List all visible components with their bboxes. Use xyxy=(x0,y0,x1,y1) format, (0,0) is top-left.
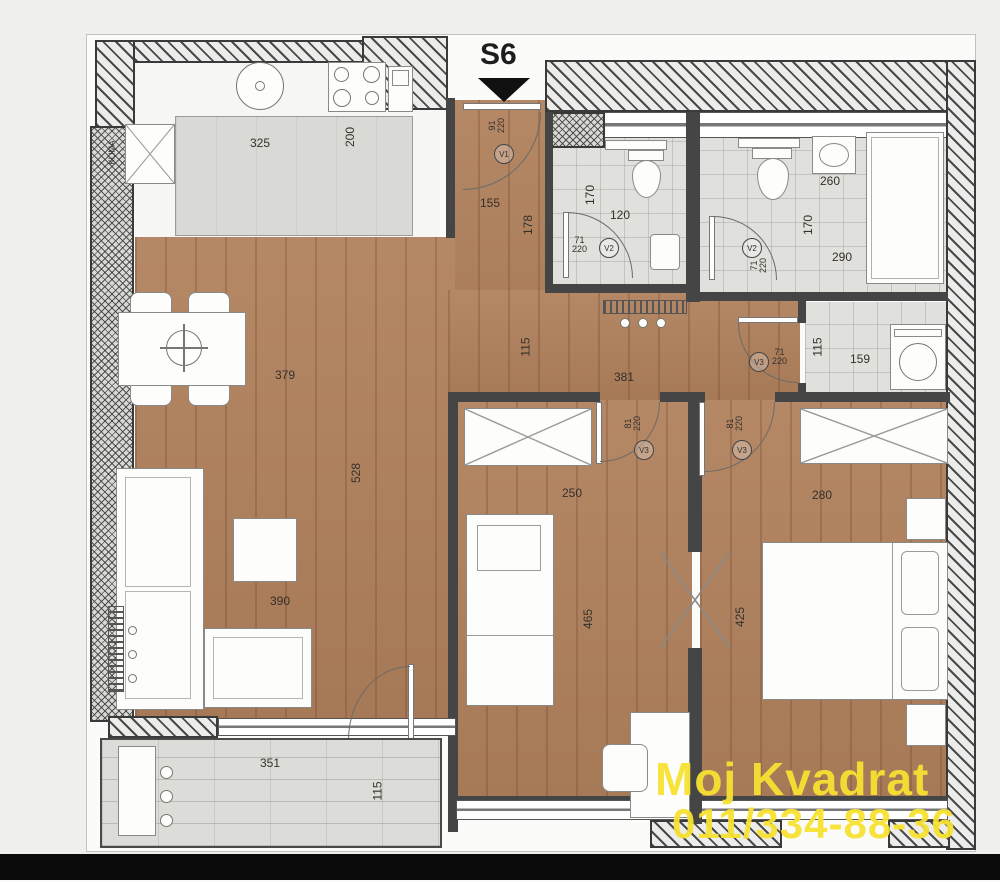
washing-machine-drum xyxy=(899,343,937,381)
sofa-chaise xyxy=(204,628,312,708)
dim-bed2-depth: 425 xyxy=(733,607,747,627)
dim-bath2-width: 290 xyxy=(832,250,852,264)
bed2-nightstand xyxy=(906,704,946,746)
living-terrace-window xyxy=(218,718,456,736)
bed1-door-tag: V3 xyxy=(634,440,654,460)
bath2-shower-inner xyxy=(871,137,939,279)
bed2-wardrobe xyxy=(800,408,948,464)
dim-entry-width: 155 xyxy=(480,196,500,210)
wall-bath1-bottom xyxy=(552,284,692,293)
dim-bath2-sink: 260 xyxy=(820,174,840,188)
dim-terrace-depth: 115 xyxy=(371,781,385,800)
bed1-door-size: 81220 xyxy=(624,416,643,431)
dim-bed1-width: 250 xyxy=(562,486,582,500)
wall-bath-divider xyxy=(686,112,700,302)
watermark-line2: 011/334-88-36 xyxy=(672,800,956,848)
wall-living-bedroom1 xyxy=(448,392,458,832)
dim-bed2-width: 280 xyxy=(812,488,832,502)
bedroom-connecting-door xyxy=(660,552,730,648)
storage-door-tag: V3 xyxy=(749,352,769,372)
entry-door-size: 91220 xyxy=(488,118,507,133)
title-s6: S6 xyxy=(480,38,517,72)
wall-storage-left-upper xyxy=(798,301,806,323)
floor-plan: 325 200 KLIMA S6 91220 V1 155 178 170 12… xyxy=(0,0,1000,882)
terrace-ac-fan xyxy=(160,766,173,779)
dim-kitchen-depth: 200 xyxy=(343,127,357,147)
bath2-sink xyxy=(812,136,856,174)
fridge-inner xyxy=(392,70,409,86)
dim-kitchen-width: 325 xyxy=(250,136,270,150)
dim-terrace-width: 351 xyxy=(260,756,280,770)
wall-corridor-left xyxy=(446,98,455,238)
bath1-door-tag: V2 xyxy=(599,238,619,258)
dim-bed1-depth: 465 xyxy=(581,609,595,629)
terrace-ac-unit xyxy=(118,746,156,836)
klima-label: KLIMA xyxy=(108,140,117,164)
sofa-cushion xyxy=(125,477,191,587)
sofa-cushion xyxy=(213,637,303,699)
terrace-ac-fan xyxy=(160,790,173,803)
bath1-sink xyxy=(650,234,680,270)
bed1-chair xyxy=(602,744,648,792)
dim-bath1-depth: 170 xyxy=(583,185,597,205)
burner xyxy=(365,91,379,105)
wall-top-left-corner xyxy=(95,40,135,128)
dim-bath2-depth: 170 xyxy=(801,215,815,235)
bath2-shower xyxy=(866,132,944,284)
washing-machine-panel xyxy=(894,329,942,337)
living-radiator-knob xyxy=(128,674,137,683)
dim-hall-width: 381 xyxy=(614,370,634,384)
bath2-shelf xyxy=(738,138,800,148)
dim-living-depth: 528 xyxy=(349,463,363,483)
bottom-black-bar xyxy=(0,854,1000,880)
entry-door-leaf xyxy=(463,103,541,110)
shaft-block xyxy=(548,112,605,148)
burner xyxy=(333,89,351,107)
bed1-blanket-line xyxy=(467,635,553,636)
bed2-door-size: 81220 xyxy=(726,416,745,431)
kitchen-counter xyxy=(175,116,413,236)
dim-bath1-width: 120 xyxy=(610,208,630,222)
living-radiator-knob xyxy=(128,626,137,635)
bath2-sink-basin xyxy=(819,143,849,167)
bath2-door-tag: V2 xyxy=(742,238,762,258)
burner xyxy=(363,66,380,83)
dining-table-decor-line xyxy=(183,324,185,372)
bath1-door-size: 71220 xyxy=(572,236,587,255)
wall-bath2-bottom xyxy=(699,292,948,301)
entry-door-tag: V1 xyxy=(494,144,514,164)
sofa-cushion xyxy=(125,591,191,699)
wall-hall-bedrooms-b xyxy=(660,392,705,402)
bed2-pillow xyxy=(901,627,939,691)
hall-radiator-knob xyxy=(638,318,648,328)
watermark-line1: Moj Kvadrat xyxy=(655,752,929,806)
stove xyxy=(328,62,386,112)
kitchen-sink-drain xyxy=(255,81,265,91)
dim-storage-width: 159 xyxy=(850,352,870,366)
bed2-nightstand xyxy=(906,498,946,540)
dim-living-width: 379 xyxy=(275,368,295,382)
burner xyxy=(334,67,349,82)
bed2-door-tag: V3 xyxy=(732,440,752,460)
bed1-pillow xyxy=(477,525,541,571)
storage-door-size: 71220 xyxy=(772,348,787,367)
dim-hall-depth: 115 xyxy=(519,337,533,356)
entrance-arrow-icon xyxy=(478,78,530,102)
bath2-door-size: 71220 xyxy=(750,258,769,273)
wall-hall-bedrooms-a xyxy=(448,392,600,402)
living-radiator-knob xyxy=(128,650,137,659)
bath1-shelf xyxy=(605,140,667,150)
klima-unit xyxy=(125,124,175,184)
hall-radiator xyxy=(603,300,687,314)
living-radiator xyxy=(108,606,124,692)
dim-living-width2: 390 xyxy=(270,594,290,608)
coffee-table xyxy=(233,518,297,582)
dim-storage-depth: 115 xyxy=(811,337,825,356)
terrace-ac-fan xyxy=(160,814,173,827)
hall-radiator-knob xyxy=(656,318,666,328)
bed2-double-bed xyxy=(762,542,948,700)
bed2-pillow xyxy=(901,551,939,615)
hall-radiator-knob xyxy=(620,318,630,328)
washing-machine xyxy=(890,324,946,390)
wall-top-bathrooms xyxy=(545,60,960,112)
wall-living-bottom-hatch xyxy=(108,716,218,738)
bed2-blanket-line xyxy=(892,543,893,699)
wall-right xyxy=(946,60,976,850)
bed1-wardrobe xyxy=(464,408,592,466)
fridge xyxy=(388,66,413,112)
bed1-single-bed xyxy=(466,514,554,706)
wall-hall-bedrooms-c xyxy=(775,392,950,402)
wall-corridor-right xyxy=(545,112,553,293)
dim-entry-depth: 178 xyxy=(521,215,535,235)
